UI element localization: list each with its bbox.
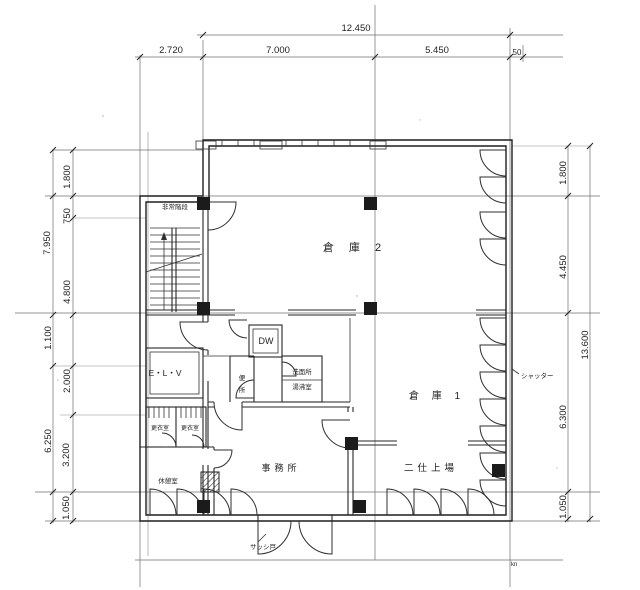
warehouse1-door-opening bbox=[346, 412, 355, 440]
dim-left-inner1: 1.800 bbox=[62, 165, 73, 189]
room-label-toilet-char2: 所 bbox=[239, 385, 246, 394]
floor-plan-scan: 12.450 2.720 7.000 5.450 50 7.950 1.100 … bbox=[0, 0, 640, 590]
dim-right-inner3: 6.300 bbox=[558, 405, 569, 429]
dim-right-outer1: 13.600 bbox=[580, 330, 591, 359]
dim-left-inner3: 4.800 bbox=[62, 280, 73, 304]
entrance-annotation: サッシ戸 bbox=[250, 543, 277, 551]
emergency-staircase bbox=[146, 228, 202, 312]
right-wall-annotation: シャッター bbox=[521, 371, 554, 380]
room-label-elevator: E・L・V bbox=[148, 368, 181, 378]
room-label-emergency-stairs: 非常階段 bbox=[162, 202, 189, 211]
room-label-warehouse1: 倉 庫 1 bbox=[409, 389, 465, 402]
dim-top-total: 12.450 bbox=[341, 23, 370, 34]
room-label-washroom-line2: 湯沸室 bbox=[292, 382, 312, 391]
room-labels: 倉 庫 2 倉 庫 1 DW 洗面所 湯沸室 便 所 E・L・V 非常階段 更衣… bbox=[148, 202, 465, 485]
dim-left-outer1: 7.950 bbox=[42, 231, 53, 255]
top-wall-glazing bbox=[196, 140, 386, 149]
dim-right-inner2: 4.450 bbox=[558, 255, 569, 279]
room-label-rest-room: 休憩室 bbox=[158, 476, 178, 485]
room-label-warehouse2: 倉 庫 2 bbox=[323, 240, 387, 254]
room-label-washroom-line1: 洗面所 bbox=[292, 367, 312, 376]
dim-right-inner1: 1.800 bbox=[558, 161, 569, 185]
room-label-office: 事務所 bbox=[261, 462, 300, 473]
dim-left-inner2: 750 bbox=[62, 208, 73, 224]
dim-left-inner4: 2.000 bbox=[62, 369, 73, 393]
room-label-locker-left: 更衣室 bbox=[151, 424, 169, 432]
room-label-dumbwaiter: DW bbox=[259, 336, 274, 346]
dim-top-seg1: 2.720 bbox=[159, 45, 183, 56]
dim-left-inner5: 3.200 bbox=[61, 443, 72, 467]
stair-direction-arrow bbox=[161, 232, 167, 240]
corner-mark: kn bbox=[511, 562, 517, 568]
dim-left-outer3: 6.250 bbox=[43, 429, 54, 453]
elevator-door-opening bbox=[200, 355, 210, 381]
room-label-finishing-area: 二仕上場 bbox=[404, 462, 458, 474]
dimension-texts: 12.450 2.720 7.000 5.450 50 7.950 1.100 … bbox=[42, 23, 591, 520]
dim-top-seg4: 50 bbox=[513, 48, 522, 57]
dim-top-seg2: 7.000 bbox=[266, 45, 290, 56]
window-swings-right-wall bbox=[480, 150, 506, 506]
room-label-toilet-char1: 便 bbox=[239, 373, 246, 382]
toilet-stall bbox=[203, 356, 254, 402]
scan-artifacts bbox=[57, 115, 558, 469]
room-label-locker-right: 更衣室 bbox=[181, 424, 199, 432]
floor-plan-canvas: 12.450 2.720 7.000 5.450 50 7.950 1.100 … bbox=[0, 0, 640, 590]
dim-top-seg3: 5.450 bbox=[425, 45, 449, 56]
office-door-opening bbox=[214, 400, 242, 409]
dim-left-outer2: 1.100 bbox=[43, 326, 54, 350]
dim-left-inner6: 1.050 bbox=[61, 496, 72, 520]
dim-right-inner4: 1.050 bbox=[558, 495, 569, 519]
